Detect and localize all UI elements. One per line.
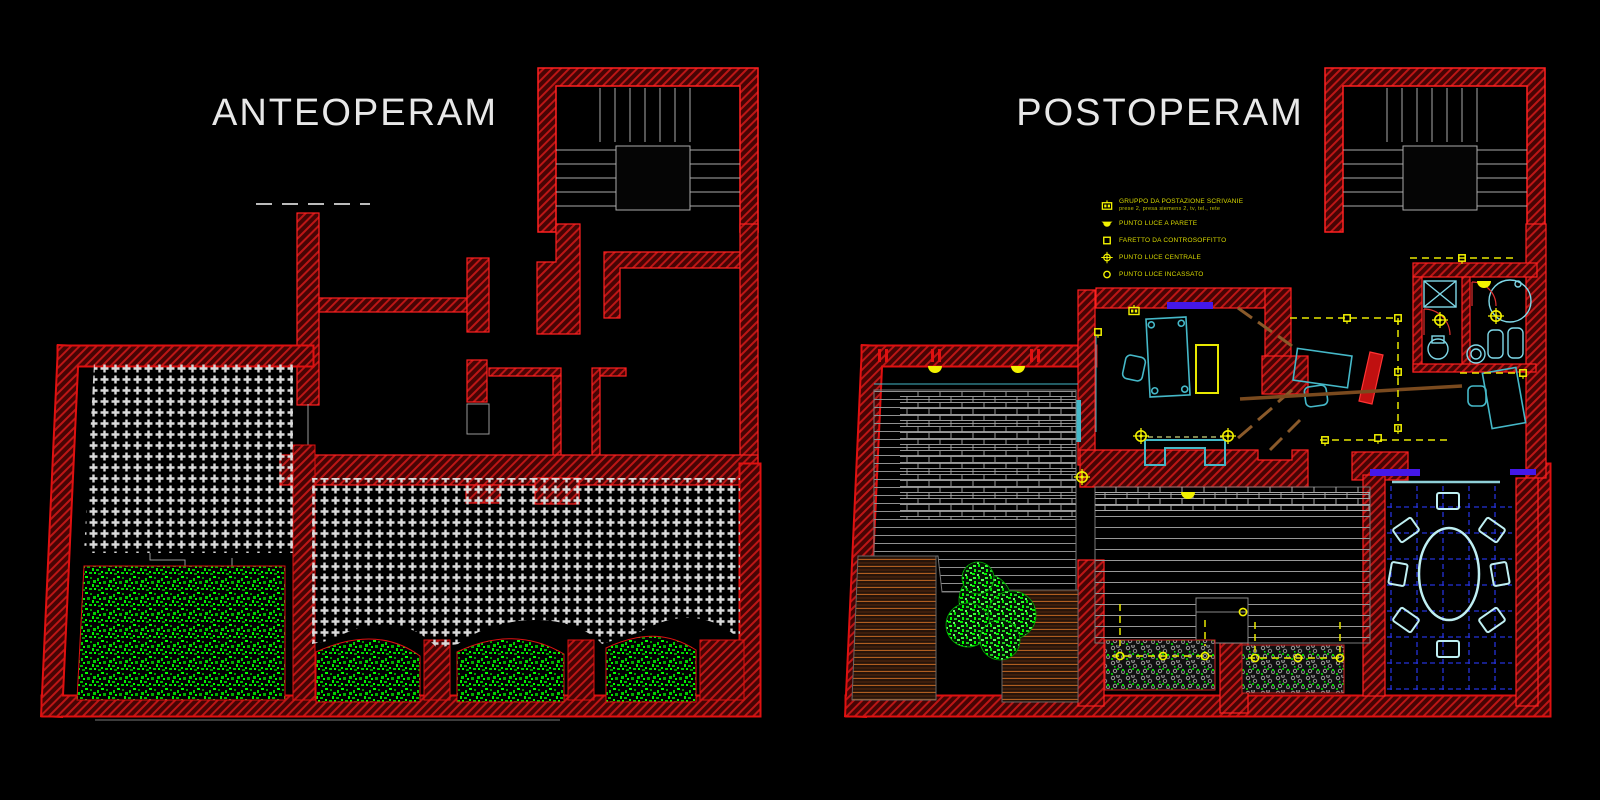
legend-label: PUNTO LUCE A PARETE — [1119, 220, 1197, 227]
desk-1 — [1146, 317, 1190, 397]
ceiling-spotlight-icon — [1100, 234, 1114, 247]
window-purple-1 — [1167, 302, 1213, 309]
garden-patch-3 — [457, 639, 564, 702]
electrical-legend: GRUPPO DA POSTAZIONE SCRIVANIE prese 2, … — [1100, 198, 1275, 285]
left-plan-title: ANTEOPERAM — [205, 92, 505, 135]
desk-chair-3 — [1468, 386, 1486, 406]
staircase-left — [538, 68, 758, 232]
desk-chair-1 — [1122, 354, 1147, 382]
furniture — [1096, 317, 1526, 465]
legend-label: PUNTO LUCE CENTRALE — [1119, 254, 1201, 261]
gravel-strip-2 — [1242, 645, 1344, 693]
central-light-icon — [1100, 251, 1114, 264]
anteoperam-plan — [52, 68, 758, 720]
legend-label: PUNTO LUCE INCASSATO — [1119, 271, 1204, 278]
postoperam-plan — [852, 68, 1546, 713]
tile-area-lower — [312, 478, 740, 648]
desk-outlet-group-icon — [1100, 199, 1114, 212]
recessed-light-icon — [1100, 268, 1114, 281]
central-light-icon — [1133, 428, 1149, 444]
legend-item: PUNTO LUCE CENTRALE — [1100, 251, 1275, 264]
legend-item: PUNTO LUCE INCASSATO — [1100, 268, 1275, 281]
garden-patch-2 — [316, 639, 420, 702]
wall-light-icon — [928, 366, 942, 373]
legend-item: GRUPPO DA POSTAZIONE SCRIVANIE prese 2, … — [1100, 198, 1275, 213]
door-recess-box — [467, 404, 489, 434]
wall-light-icon — [1100, 217, 1114, 230]
window-purple-2 — [1370, 469, 1420, 476]
legend-label: FARETTO DA CONTROSOFFITTO — [1119, 237, 1226, 244]
stair-treads — [556, 88, 740, 210]
wall-light-icon — [1477, 281, 1491, 288]
garden-large — [77, 566, 285, 700]
legend-item: FARETTO DA CONTROSOFFITTO — [1100, 234, 1275, 247]
blue-tile-floor — [1386, 482, 1512, 694]
wc-toilet — [1428, 339, 1448, 359]
stair-treads — [1343, 88, 1527, 210]
cad-canvas: ANTEOPERAM POSTOPERAM GRUPPO DA POSTAZIO… — [0, 0, 1600, 800]
dining-area — [1386, 482, 1512, 694]
interior-walls-left — [280, 213, 758, 504]
legend-item: PUNTO LUCE A PARETE — [1100, 217, 1275, 230]
legend-sublabel: prese 2, presa siemens 2, tv, tel., rete — [1119, 206, 1220, 212]
wall-light-icon — [1011, 366, 1025, 373]
wood-deck-left — [852, 556, 936, 700]
central-light-icon — [1432, 312, 1448, 328]
bidet — [1508, 328, 1523, 358]
paving-step-detail — [150, 553, 232, 566]
toilet — [1488, 330, 1503, 358]
terrace-surfaces-right — [852, 384, 1078, 702]
window-cyan — [1076, 400, 1081, 442]
brick-paving — [900, 392, 1076, 520]
window-purple-3 — [1510, 469, 1536, 475]
gravel-strip-1 — [1105, 640, 1215, 690]
legend-label: GRUPPO DA POSTAZIONE SCRIVANIE — [1119, 198, 1243, 205]
right-plan-title: POSTOPERAM — [1010, 92, 1310, 135]
garden-patch-4 — [606, 636, 696, 702]
staircase-right — [1325, 68, 1545, 232]
central-light-icon — [1220, 428, 1236, 444]
central-light-icon — [1488, 308, 1504, 324]
tile-area-upper — [84, 363, 293, 553]
rug-yellow — [1196, 345, 1218, 393]
